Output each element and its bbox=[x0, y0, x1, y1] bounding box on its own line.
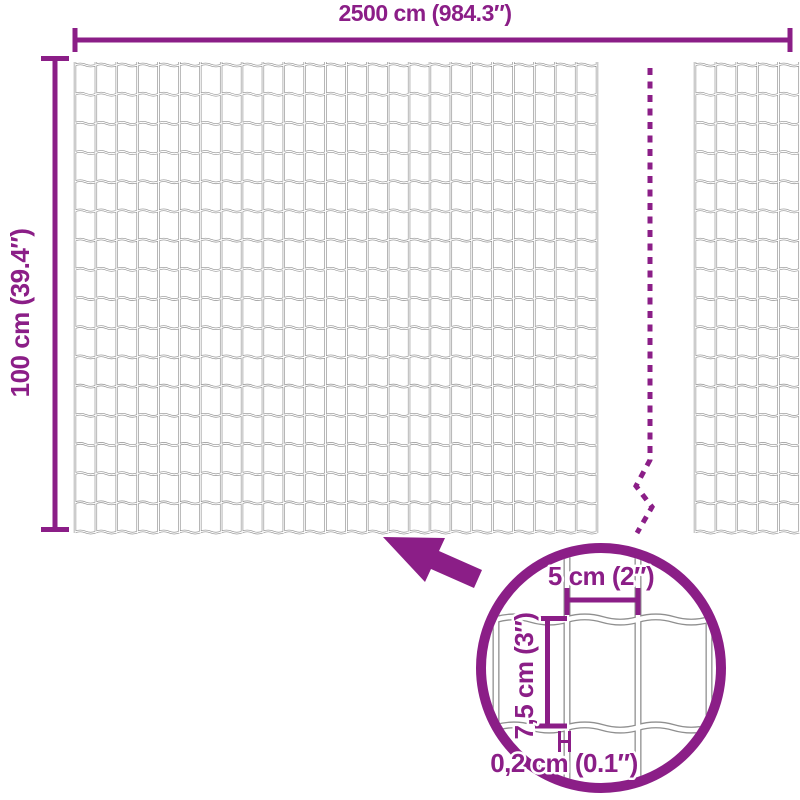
cell-width-cap-left bbox=[565, 588, 570, 615]
wire-thickness-label: 0,2 cm (0.1″) bbox=[490, 748, 638, 778]
product-diagram: 2500 cm (984.3″) 100 cm (39.4″) 5 cm (2″… bbox=[0, 0, 800, 800]
width-dimension-line bbox=[75, 38, 790, 43]
cell-height-line bbox=[545, 618, 550, 727]
height-dimension: 100 cm (39.4″) bbox=[5, 56, 69, 532]
width-dimension-cap-left bbox=[73, 28, 78, 52]
detail-zoom-circle: 5 cm (2″) 7,5 cm (3″) 0,2 cm (0.1″) bbox=[425, 545, 780, 792]
cell-width-line bbox=[567, 598, 638, 603]
mesh-panel-right bbox=[695, 62, 800, 533]
diagram-canvas: 2500 cm (984.3″) 100 cm (39.4″) 5 cm (2″… bbox=[0, 0, 800, 800]
height-dimension-label: 100 cm (39.4″) bbox=[5, 229, 35, 398]
width-dimension-cap-right bbox=[788, 28, 793, 52]
cell-height-cap-top bbox=[535, 616, 567, 621]
wire-thickness-line bbox=[558, 740, 571, 743]
detail-arrow-icon bbox=[383, 537, 482, 588]
cell-height-cap-bottom bbox=[535, 724, 567, 729]
height-dimension-cap-top bbox=[41, 56, 69, 61]
cell-height-label: 7,5 cm (3″) bbox=[509, 613, 539, 740]
height-dimension-cap-bottom bbox=[41, 527, 69, 532]
height-dimension-line bbox=[53, 58, 58, 530]
width-dimension: 2500 cm (984.3″) bbox=[73, 0, 793, 52]
mesh-panel-main bbox=[75, 62, 597, 533]
break-line bbox=[636, 68, 652, 533]
width-dimension-label: 2500 cm (984.3″) bbox=[338, 0, 511, 26]
cell-width-label: 5 cm (2″) bbox=[548, 561, 654, 591]
cell-width-cap-right bbox=[636, 588, 641, 615]
